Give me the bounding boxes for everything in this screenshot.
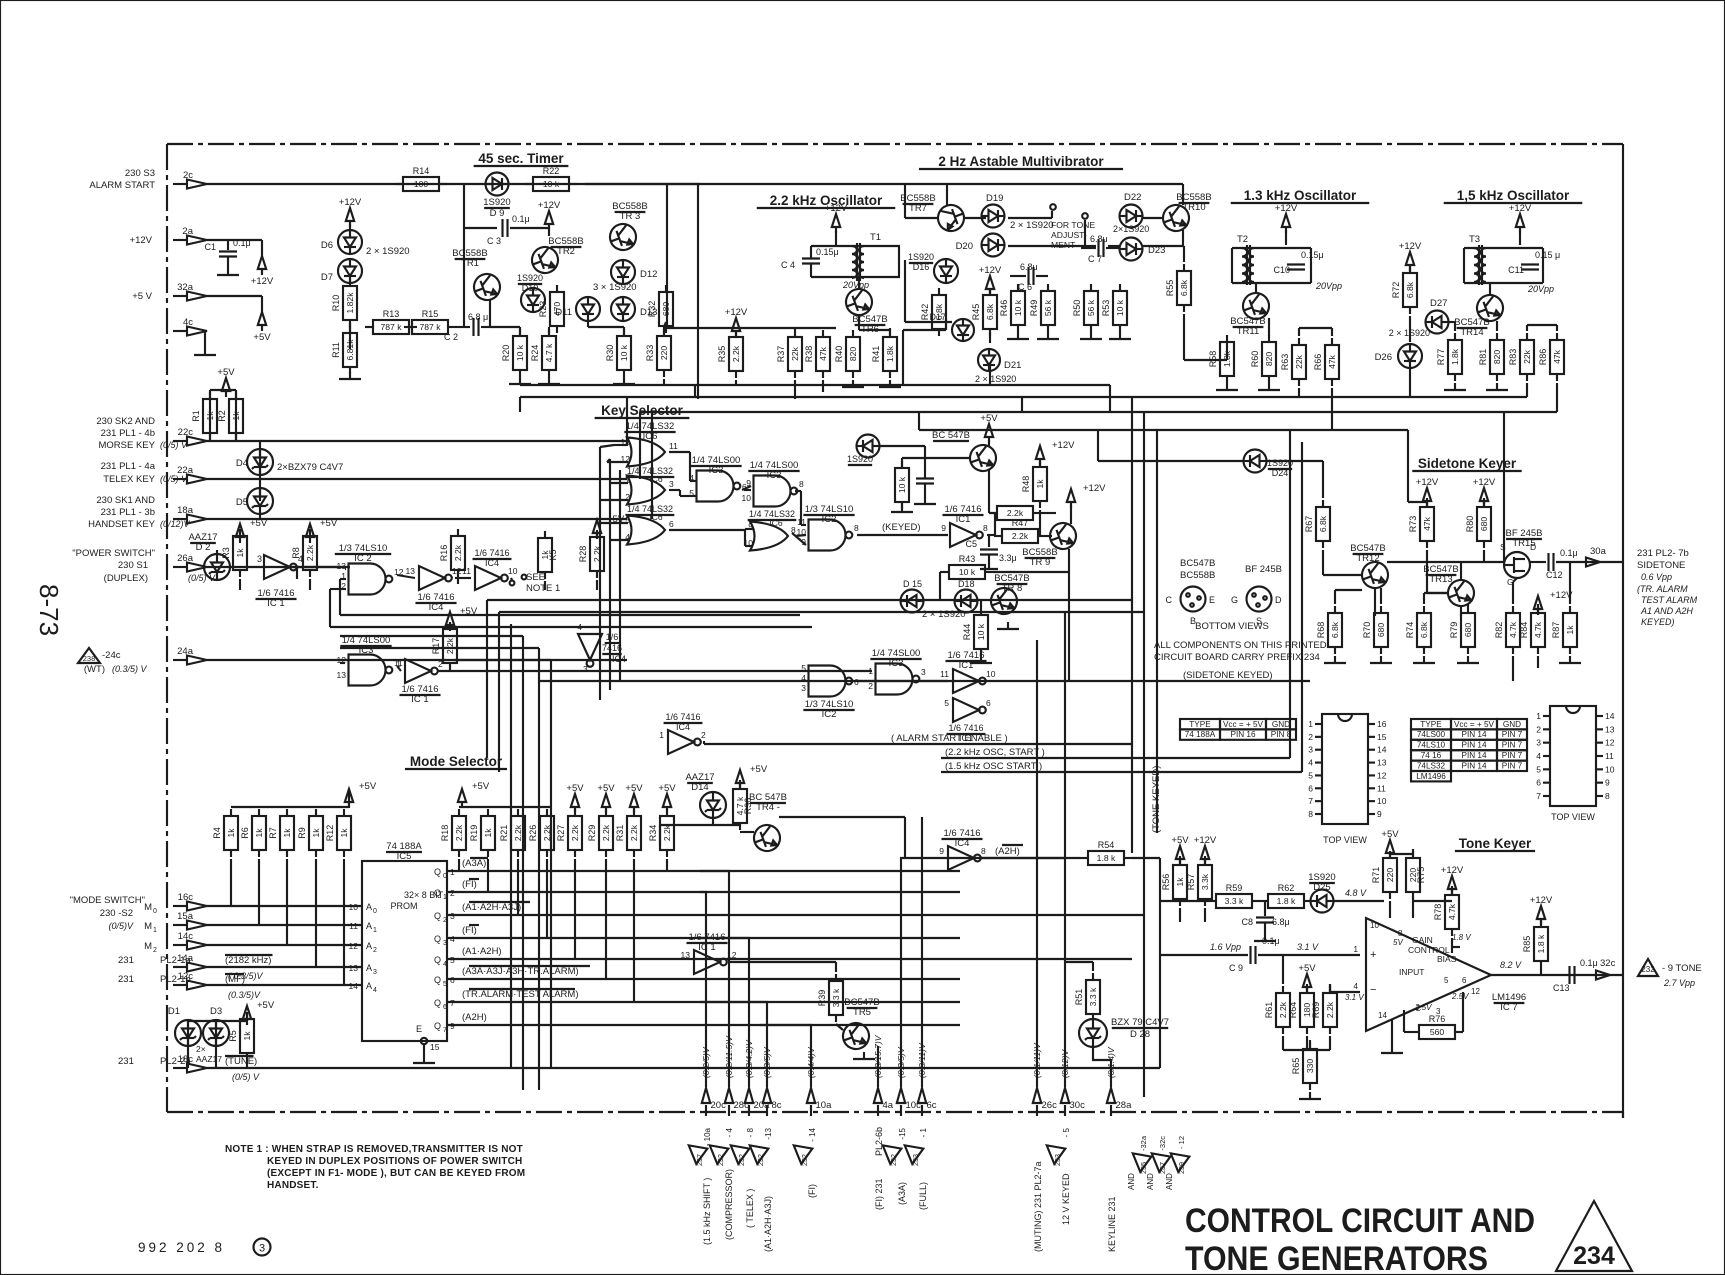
svg-text:4: 4 <box>577 622 582 632</box>
svg-text:2.2k: 2.2k <box>305 544 315 561</box>
svg-text:PIN 7: PIN 7 <box>1502 751 1523 760</box>
svg-text:8.2 V: 8.2 V <box>1500 960 1522 970</box>
svg-text:1/6 7416: 1/6 7416 <box>948 723 983 733</box>
svg-text:(TONE KEYED): (TONE KEYED) <box>1151 766 1162 833</box>
svg-text:232: 232 <box>756 1154 765 1166</box>
svg-text:TYPE: TYPE <box>1189 720 1211 729</box>
svg-text:GND: GND <box>1503 720 1521 729</box>
svg-text:20Vpp: 20Vpp <box>1315 281 1342 291</box>
svg-text:+12V: +12V <box>1194 835 1217 846</box>
svg-text:+12V: +12V <box>339 197 362 208</box>
svg-text:C1: C1 <box>204 242 216 252</box>
svg-text:1k: 1k <box>282 828 292 838</box>
svg-text:TELEX KEY: TELEX KEY <box>103 474 155 485</box>
svg-text:GAIN: GAIN <box>1412 935 1433 945</box>
svg-text:C10: C10 <box>1273 265 1290 275</box>
svg-text:238: 238 <box>83 654 96 663</box>
svg-text:231 PL2- 7b: 231 PL2- 7b <box>1637 548 1689 559</box>
svg-text:MENT: MENT <box>1051 240 1076 250</box>
svg-text:(0.3/5) V: (0.3/5) V <box>112 664 148 674</box>
svg-text:6: 6 <box>1462 976 1467 985</box>
svg-text:D 28: D 28 <box>1130 1029 1150 1040</box>
svg-text:3: 3 <box>373 969 377 976</box>
svg-text:1k: 1k <box>235 548 245 558</box>
svg-text:3: 3 <box>801 683 806 693</box>
svg-text:20Vpp: 20Vpp <box>1527 284 1554 294</box>
svg-text:R16: R16 <box>439 545 449 562</box>
svg-text:R80: R80 <box>1465 516 1475 533</box>
svg-text:AAZ17: AAZ17 <box>196 1054 222 1064</box>
svg-text:IC4: IC4 <box>429 602 444 613</box>
svg-text:0.15 μ: 0.15 μ <box>1535 250 1560 260</box>
svg-text:0.1μ: 0.1μ <box>1262 936 1280 946</box>
svg-text:220: 220 <box>659 346 669 361</box>
svg-text:11: 11 <box>940 669 949 679</box>
svg-text:AND: AND <box>1127 1173 1136 1190</box>
svg-text:4.8 V: 4.8 V <box>1345 888 1367 898</box>
svg-text:11: 11 <box>1605 751 1614 761</box>
svg-text:-24c: -24c <box>102 650 121 661</box>
svg-text:14: 14 <box>1378 1011 1387 1020</box>
svg-text:−: − <box>1370 984 1376 996</box>
svg-text:R40: R40 <box>834 346 844 363</box>
svg-text:3.3k: 3.3k <box>1200 873 1210 890</box>
svg-text:BF 245B: BF 245B <box>1245 564 1282 575</box>
svg-text:2: 2 <box>1416 1004 1421 1013</box>
svg-text:74 16: 74 16 <box>1421 751 1442 760</box>
svg-text:TYPE: TYPE <box>1420 720 1442 729</box>
svg-text:TR14: TR14 <box>1460 327 1483 338</box>
svg-text:6c: 6c <box>927 1100 937 1111</box>
svg-text:56 k: 56 k <box>1086 299 1096 316</box>
svg-text:2 × 1S920: 2 × 1S920 <box>1010 220 1054 231</box>
svg-text:R78: R78 <box>1433 904 1443 921</box>
svg-text:231: 231 <box>118 1056 134 1067</box>
svg-text:+5V: +5V <box>460 606 478 617</box>
svg-text:6: 6 <box>669 519 674 529</box>
svg-text:+5V: +5V <box>250 518 268 529</box>
svg-text:R73: R73 <box>1408 516 1418 533</box>
svg-text:R46: R46 <box>999 300 1009 317</box>
svg-text:+5V: +5V <box>253 332 271 343</box>
svg-text:(1.5 kHz SHIFT ): (1.5 kHz SHIFT ) <box>702 1178 712 1245</box>
svg-text:10: 10 <box>1370 921 1379 930</box>
svg-text:4: 4 <box>1308 758 1313 768</box>
svg-text:R21: R21 <box>499 825 509 842</box>
svg-text:0.1μ: 0.1μ <box>1560 548 1578 558</box>
svg-text:232: 232 <box>716 1154 725 1166</box>
svg-text:4: 4 <box>443 961 447 968</box>
svg-text:4.7k: 4.7k <box>1447 903 1457 920</box>
svg-text:TOP VIEW: TOP VIEW <box>1551 812 1595 822</box>
svg-text:26c: 26c <box>1042 1100 1058 1111</box>
svg-text:NOTE 1 : WHEN STRAP IS REMO: NOTE 1 : WHEN STRAP IS REMOVED,TRANSMITT… <box>225 1144 523 1155</box>
svg-text:4: 4 <box>1354 982 1359 991</box>
svg-text:D 9: D 9 <box>490 208 505 219</box>
svg-text:231 PL1 - 3b: 231 PL1 - 3b <box>101 507 155 518</box>
svg-text:2: 2 <box>868 681 873 691</box>
svg-text:PL2-6b: PL2-6b <box>874 1127 884 1156</box>
svg-text:R4: R4 <box>212 827 222 839</box>
svg-text:C 3: C 3 <box>487 236 501 246</box>
svg-text:BZX 79 C4V7: BZX 79 C4V7 <box>1111 1017 1169 1028</box>
svg-text:56 k: 56 k <box>1043 299 1053 316</box>
svg-text:+5V: +5V <box>359 781 377 792</box>
svg-text:D3: D3 <box>210 1006 222 1017</box>
svg-text:2×: 2× <box>196 1044 206 1054</box>
svg-text:4.7 k: 4.7 k <box>735 796 745 815</box>
svg-text:(EXCEPT IN F1- MODE ), BUT: (EXCEPT IN F1- MODE ), BUT CAN BE KEYED … <box>267 1168 525 1179</box>
svg-text:PIN 7: PIN 7 <box>1502 761 1523 770</box>
svg-text:SEE: SEE <box>526 572 545 583</box>
svg-text:13: 13 <box>349 963 359 973</box>
svg-text:S: S <box>1500 542 1506 552</box>
svg-text:992 202 8: 992 202 8 <box>138 1240 225 1255</box>
svg-text:A: A <box>366 902 372 912</box>
svg-text:+5V: +5V <box>607 514 625 525</box>
svg-text:(0/12)V: (0/12)V <box>1060 1049 1070 1078</box>
svg-text:1.8 V: 1.8 V <box>1452 933 1471 942</box>
svg-text:D21: D21 <box>1004 360 1021 371</box>
svg-text:D11: D11 <box>555 307 572 318</box>
svg-text:231 PL1 - 4b: 231 PL1 - 4b <box>101 428 155 439</box>
svg-text:237: 237 <box>695 1154 704 1166</box>
svg-text:2.2k: 2.2k <box>453 544 463 561</box>
svg-text:11: 11 <box>1377 783 1386 793</box>
svg-text:C12: C12 <box>1546 570 1563 580</box>
svg-text:R50: R50 <box>1072 300 1082 317</box>
svg-text:2a: 2a <box>182 226 193 237</box>
svg-text:3.3μ: 3.3μ <box>999 553 1017 563</box>
svg-text:(KEYED): (KEYED) <box>882 522 921 533</box>
svg-text:KEYED IN DUPLEX POSITIONS: KEYED IN DUPLEX POSITIONS OF POWER SWITC… <box>267 1156 522 1167</box>
svg-text:IC 2: IC 2 <box>354 553 371 564</box>
svg-text:Key Selector: Key Selector <box>601 403 684 418</box>
svg-text:12: 12 <box>1471 987 1480 996</box>
svg-text:239: 239 <box>1177 1162 1186 1174</box>
svg-text:560: 560 <box>1430 1027 1445 1037</box>
svg-text:2 × 1S920: 2 × 1S920 <box>975 374 1016 384</box>
svg-text:(DUPLEX): (DUPLEX) <box>104 573 148 584</box>
svg-text:- 9 TONE: - 9 TONE <box>1662 963 1702 974</box>
svg-text:4c: 4c <box>183 317 193 328</box>
svg-text:3.3 k: 3.3 k <box>1225 896 1244 906</box>
svg-text:+12V: +12V <box>130 235 153 246</box>
svg-text:Sidetone Keyer: Sidetone Keyer <box>1418 456 1517 471</box>
svg-text:5: 5 <box>443 981 447 988</box>
svg-text:32c: 32c <box>1600 958 1616 969</box>
svg-text:TR2: TR2 <box>557 246 575 257</box>
svg-text:22a: 22a <box>177 465 194 476</box>
svg-text:R30: R30 <box>605 345 615 362</box>
svg-text:74LS10: 74LS10 <box>1417 741 1446 750</box>
svg-text:A: A <box>366 941 372 951</box>
svg-text:PIN 14: PIN 14 <box>1461 751 1486 760</box>
svg-text:10: 10 <box>1605 764 1615 774</box>
svg-text:2.2k: 2.2k <box>513 824 523 841</box>
svg-text:2: 2 <box>1308 732 1313 742</box>
svg-text:232: 232 <box>800 1154 809 1166</box>
svg-text:2 × 1S920: 2 × 1S920 <box>922 609 966 620</box>
svg-text:R53: R53 <box>1101 300 1111 317</box>
svg-text:7: 7 <box>443 1027 447 1034</box>
svg-text:10 k: 10 k <box>897 476 907 493</box>
svg-text:0: 0 <box>373 908 377 915</box>
svg-text:+5V: +5V <box>658 783 676 794</box>
svg-text:(2.2 kHz OSC, START ): (2.2 kHz OSC, START ) <box>945 747 1045 758</box>
svg-text:(0.3/5)V: (0.3/5)V <box>896 1046 906 1078</box>
svg-text:4a: 4a <box>883 1100 894 1111</box>
svg-text:R85: R85 <box>1522 936 1532 953</box>
svg-text:4.7 k: 4.7 k <box>544 343 554 362</box>
svg-text:(0/5)V: (0/5)V <box>108 921 134 931</box>
svg-text:R59: R59 <box>1226 883 1243 893</box>
svg-text:100: 100 <box>414 179 429 189</box>
svg-text:680: 680 <box>661 302 671 317</box>
svg-text:1S920: 1S920 <box>847 454 873 464</box>
svg-text:0.1μ: 0.1μ <box>512 214 530 224</box>
svg-text:15a: 15a <box>177 911 194 922</box>
svg-text:A: A <box>366 963 372 973</box>
svg-text:R37: R37 <box>776 346 786 363</box>
svg-text:1k: 1k <box>483 828 493 838</box>
svg-text:R63: R63 <box>1280 354 1290 371</box>
svg-text:1k: 1k <box>1565 625 1575 635</box>
svg-text:R35: R35 <box>717 346 727 363</box>
svg-text:2.2k: 2.2k <box>1012 531 1029 541</box>
svg-text:0.15μ: 0.15μ <box>1301 250 1324 260</box>
svg-text:(2182 kHz): (2182 kHz) <box>225 955 271 966</box>
svg-text:6.8k: 6.8k <box>1405 281 1415 298</box>
svg-text:C 4: C 4 <box>781 260 795 270</box>
svg-text:230 SK2 AND: 230 SK2 AND <box>96 416 155 427</box>
svg-text:R60: R60 <box>1250 351 1260 368</box>
svg-text:(0.2/11.5)V: (0.2/11.5)V <box>724 1035 734 1078</box>
svg-text:T1: T1 <box>870 232 881 243</box>
svg-text:9: 9 <box>1605 778 1610 788</box>
svg-text:+12V: +12V <box>1052 440 1075 451</box>
svg-text:R61: R61 <box>1264 1002 1274 1019</box>
svg-text:TONE GENERATORS: TONE GENERATORS <box>1185 1240 1488 1275</box>
svg-text:A: A <box>366 981 372 991</box>
svg-text:13: 13 <box>1605 724 1615 734</box>
svg-text:R67: R67 <box>1304 516 1314 533</box>
svg-text:AND: AND <box>1146 1173 1155 1190</box>
svg-text:+12V: +12V <box>979 265 1002 276</box>
svg-text:(0.3/5)V: (0.3/5)V <box>762 1046 772 1078</box>
svg-text:BOTTOM VIEWS: BOTTOM VIEWS <box>1195 621 1269 632</box>
svg-text:C 2: C 2 <box>444 332 458 342</box>
svg-text:+12V: +12V <box>538 200 561 211</box>
svg-text:TR 9: TR 9 <box>1030 557 1051 568</box>
svg-text:D14: D14 <box>691 782 708 793</box>
svg-text:KEYED): KEYED) <box>1641 617 1675 627</box>
svg-text:D: D <box>1530 542 1536 552</box>
svg-text:4.7k: 4.7k <box>1533 621 1543 638</box>
svg-text:11: 11 <box>462 566 471 576</box>
svg-text:+5V: +5V <box>472 781 490 792</box>
svg-text:10: 10 <box>508 566 518 576</box>
svg-text:0.6 Vpp: 0.6 Vpp <box>1641 572 1672 582</box>
svg-text:"MODE SWITCH": "MODE SWITCH" <box>70 895 145 906</box>
svg-text:SIDETONE: SIDETONE <box>1637 560 1685 571</box>
svg-text:CONTROL CIRCUIT AND: CONTROL CIRCUIT AND <box>1185 1202 1535 1240</box>
svg-text:+12V: +12V <box>825 203 848 214</box>
svg-text:8: 8 <box>1398 929 1403 938</box>
svg-text:Q: Q <box>434 955 441 965</box>
svg-text:2.2k: 2.2k <box>662 824 672 841</box>
svg-text:6: 6 <box>1308 783 1313 793</box>
svg-text:D19: D19 <box>986 193 1003 204</box>
svg-text:R77: R77 <box>1436 349 1446 366</box>
svg-text:235: 235 <box>1139 1162 1148 1174</box>
svg-text:PIN 7: PIN 7 <box>1502 730 1523 739</box>
svg-text:TEST ALARM: TEST ALARM <box>1641 595 1698 605</box>
svg-text:(WT): (WT) <box>84 664 105 675</box>
svg-text:+5 V: +5 V <box>132 291 152 302</box>
svg-text:10 k: 10 k <box>1115 299 1125 316</box>
svg-text:R32: R32 <box>647 301 657 318</box>
svg-text:+12V: +12V <box>1473 477 1496 488</box>
svg-text:+5V: +5V <box>750 764 768 775</box>
svg-text:+5V: +5V <box>320 518 338 529</box>
svg-text:3: 3 <box>1308 745 1313 755</box>
svg-text:R19: R19 <box>469 825 479 842</box>
svg-text:R62: R62 <box>1278 883 1295 893</box>
svg-text:D22: D22 <box>1124 192 1141 203</box>
svg-text:8: 8 <box>1308 809 1313 819</box>
svg-text:D4: D4 <box>236 458 248 469</box>
svg-text:(0.3/4.2)V: (0.3/4.2)V <box>744 1039 754 1078</box>
svg-text:6: 6 <box>443 1004 447 1011</box>
svg-text:2: 2 <box>701 730 706 740</box>
svg-text:14: 14 <box>1377 745 1387 755</box>
svg-text:TR5: TR5 <box>853 1007 871 1018</box>
svg-text:+5V: +5V <box>625 783 643 794</box>
svg-text:10 k: 10 k <box>976 623 986 640</box>
svg-text:231: 231 <box>118 955 134 966</box>
svg-text:IC4: IC4 <box>612 654 626 664</box>
svg-text:(1.5 kHz OSC START ): (1.5 kHz OSC START ) <box>945 761 1042 772</box>
svg-text:M: M <box>144 902 152 913</box>
svg-text:IC4: IC4 <box>485 558 499 568</box>
svg-text:R70: R70 <box>1362 622 1372 639</box>
svg-text:1/6 7416: 1/6 7416 <box>474 548 509 558</box>
svg-text:BC547B: BC547B <box>1180 558 1215 569</box>
svg-text:2.2k: 2.2k <box>570 824 580 841</box>
svg-text:10 k: 10 k <box>515 344 525 361</box>
svg-text:10: 10 <box>986 669 996 679</box>
svg-text:IC3: IC3 <box>767 470 782 481</box>
svg-text:+: + <box>1370 949 1376 961</box>
svg-text:R17: R17 <box>431 638 441 655</box>
svg-text:R1: R1 <box>191 410 201 422</box>
svg-text:(0.3/15.7)V: (0.3/15.7)V <box>873 1034 883 1078</box>
svg-text:TR13: TR13 <box>1429 574 1452 585</box>
svg-text:Q: Q <box>434 1021 441 1031</box>
svg-text:1.8k: 1.8k <box>885 345 895 362</box>
svg-text:MORSE KEY: MORSE KEY <box>99 440 156 451</box>
svg-text:2.5V: 2.5V <box>1451 992 1469 1001</box>
svg-text:1.8 k: 1.8 k <box>1277 896 1296 906</box>
svg-text:D6: D6 <box>321 240 333 251</box>
svg-text:R56: R56 <box>1161 874 1171 891</box>
svg-text:PIN 14: PIN 14 <box>1461 741 1486 750</box>
svg-text:13: 13 <box>681 950 691 960</box>
svg-text:1k: 1k <box>226 828 236 838</box>
svg-text:Vcc = + 5V: Vcc = + 5V <box>1223 720 1264 729</box>
svg-text:R76: R76 <box>1429 1014 1446 1024</box>
svg-text:1k: 1k <box>339 828 349 838</box>
svg-text:9: 9 <box>939 846 944 856</box>
svg-text:13: 13 <box>406 566 416 576</box>
svg-text:820: 820 <box>1492 350 1502 365</box>
svg-text:IC 7: IC 7 <box>1500 1002 1517 1013</box>
svg-text:+5V: +5V <box>1171 835 1189 846</box>
svg-text:R34: R34 <box>648 825 658 842</box>
svg-text:220: 220 <box>1408 868 1418 883</box>
svg-text:PIN 16: PIN 16 <box>1230 730 1255 739</box>
svg-text:IC4: IC4 <box>676 722 690 732</box>
svg-text:TR10: TR10 <box>1182 202 1205 213</box>
svg-text:14a: 14a <box>177 953 194 964</box>
svg-text:R84: R84 <box>1519 622 1529 639</box>
svg-text:12: 12 <box>349 941 359 951</box>
svg-text:IC5: IC5 <box>397 851 412 862</box>
svg-text:(A3A): (A3A) <box>462 858 486 869</box>
svg-text:12: 12 <box>1605 738 1615 748</box>
svg-text:6.81k: 6.81k <box>345 339 355 361</box>
svg-text:230 S3: 230 S3 <box>125 168 155 179</box>
svg-text:1k: 1k <box>254 828 264 838</box>
svg-text:HANDSET KEY: HANDSET KEY <box>88 519 156 530</box>
svg-text:1.8k: 1.8k <box>1450 348 1460 365</box>
svg-text:A1 AND A2H: A1 AND A2H <box>1640 606 1693 616</box>
svg-text:TR4 -: TR4 - <box>756 802 780 813</box>
svg-text:R81: R81 <box>1478 349 1488 366</box>
svg-text:2×BZX79 C4V7: 2×BZX79 C4V7 <box>277 462 343 473</box>
svg-text:M: M <box>144 941 152 952</box>
svg-text:( ALARM START ENABLE ): ( ALARM START ENABLE ) <box>891 733 1008 744</box>
svg-text:8-73: 8-73 <box>34 584 64 636</box>
svg-text:PIN 7: PIN 7 <box>1502 741 1523 750</box>
svg-text:R23: R23 <box>538 301 548 318</box>
svg-text:R2: R2 <box>217 410 227 422</box>
svg-text:R7: R7 <box>268 827 278 839</box>
svg-text:D18: D18 <box>958 579 975 589</box>
svg-text:12c: 12c <box>178 971 194 982</box>
svg-text:R33: R33 <box>645 345 655 362</box>
svg-text:680: 680 <box>1463 623 1473 638</box>
svg-text:(0.4/4)V: (0.4/4)V <box>806 1046 816 1078</box>
svg-text:1k: 1k <box>1035 479 1045 489</box>
svg-text:R26: R26 <box>528 825 538 842</box>
svg-text:10 k: 10 k <box>1013 299 1023 316</box>
svg-text:6: 6 <box>1536 778 1541 788</box>
svg-text:3.3 k: 3.3 k <box>1088 987 1098 1006</box>
svg-text:(0.2/5)V: (0.2/5)V <box>701 1046 711 1078</box>
svg-text:R43: R43 <box>959 554 976 564</box>
svg-text:12: 12 <box>1377 770 1387 780</box>
svg-text:IC1: IC1 <box>956 514 971 525</box>
svg-text:7: 7 <box>1536 791 1541 801</box>
svg-text:1: 1 <box>443 894 447 901</box>
svg-text:Q: Q <box>434 975 441 985</box>
svg-text:- 10a: - 10a <box>703 1127 712 1146</box>
svg-text:IC3: IC3 <box>709 465 724 476</box>
svg-text:PROM: PROM <box>391 901 418 911</box>
svg-text:3.1 V: 3.1 V <box>1345 993 1364 1002</box>
